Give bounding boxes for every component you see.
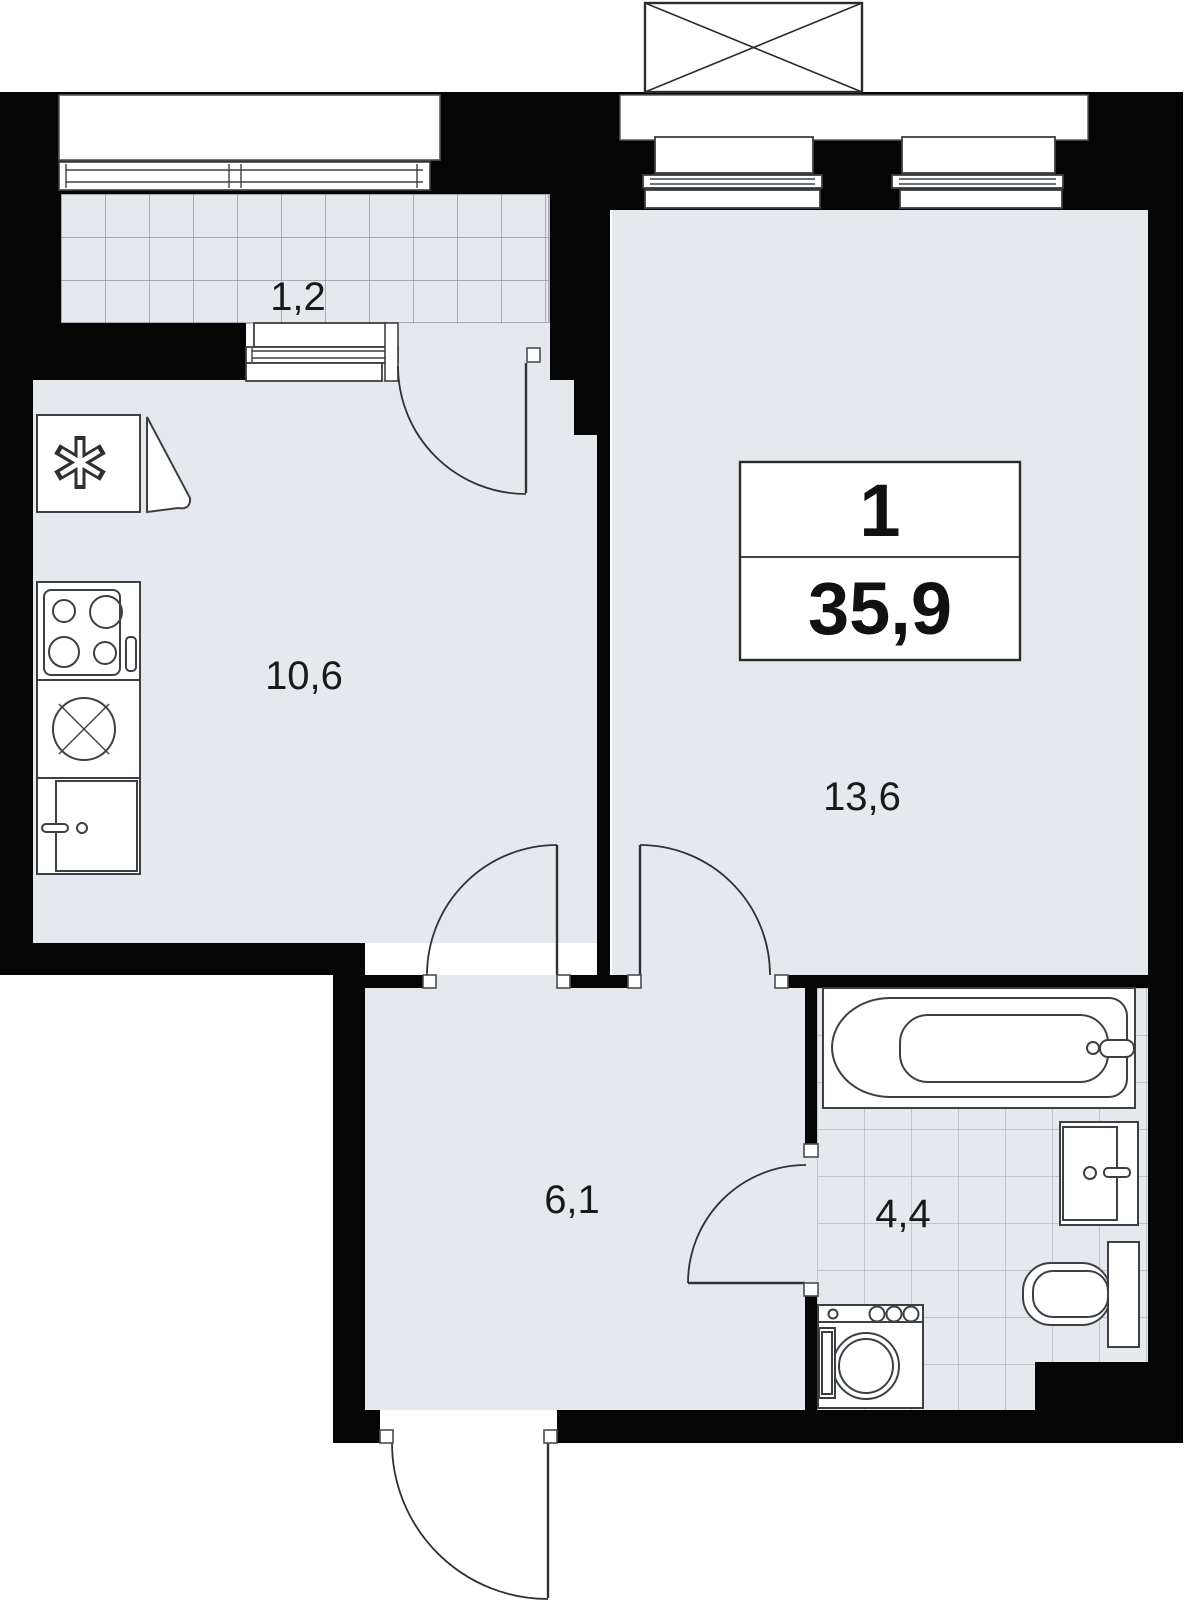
bathtub-spout-icon bbox=[1100, 1040, 1134, 1057]
wall-right bbox=[1148, 92, 1183, 1443]
wall-balcony-living-divider bbox=[550, 160, 610, 380]
living-room-area-label: 13,6 bbox=[823, 775, 901, 819]
toilet-cistern bbox=[1108, 1242, 1139, 1347]
washbasin-spout-icon bbox=[1104, 1168, 1130, 1177]
wall-under-balcony bbox=[33, 323, 246, 380]
washing-machine bbox=[818, 1305, 923, 1408]
balcony-area-label: 1,2 bbox=[270, 275, 326, 319]
entrance-door bbox=[380, 1410, 557, 1599]
wall-kitchen-bottom bbox=[0, 943, 365, 975]
kitchen-balcony-window bbox=[246, 323, 398, 381]
floor-plan-drawing: 1,2 10,6 13,6 6,1 4,4 1 35,9 bbox=[0, 0, 1185, 1600]
vent-shaft-symbol bbox=[645, 3, 862, 92]
total-area-value: 35,9 bbox=[808, 567, 952, 650]
rooms-count-value: 1 bbox=[859, 469, 900, 552]
bathtub bbox=[823, 988, 1135, 1108]
living-room-window-right bbox=[892, 137, 1063, 208]
wall-bathroom-left-lower bbox=[805, 1283, 817, 1410]
wall-hallway-top-stub bbox=[365, 975, 423, 988]
bathroom-doorway-floor bbox=[805, 1157, 817, 1283]
apartment-info-box: 1 35,9 bbox=[740, 462, 1020, 660]
wall-kitchen-living bbox=[597, 435, 610, 975]
balcony-railing-window bbox=[59, 162, 430, 190]
stove bbox=[37, 582, 140, 680]
living-room-window-left bbox=[643, 137, 822, 208]
kitchen-cabinet bbox=[37, 778, 140, 874]
bathtub-faucet-icon bbox=[1087, 1042, 1099, 1054]
wall-left bbox=[0, 190, 33, 975]
balcony-glazing bbox=[59, 95, 440, 160]
hallway-area-label: 6,1 bbox=[544, 1178, 600, 1222]
washbasin bbox=[1060, 1122, 1138, 1225]
wall-kitchen-living-tip bbox=[570, 975, 628, 988]
washbasin-faucet-icon bbox=[1084, 1167, 1096, 1179]
bathroom-area-label: 4,4 bbox=[875, 1192, 931, 1236]
wall-bathroom-left-upper bbox=[805, 988, 817, 1157]
wall-living-bottom bbox=[787, 975, 1148, 988]
kitchen-area-label: 10,6 bbox=[265, 654, 343, 698]
wall-divider-step bbox=[574, 380, 610, 435]
wall-hallway-left bbox=[333, 943, 365, 1443]
floor-plan-page: 1,2 10,6 13,6 6,1 4,4 1 35,9 bbox=[0, 0, 1185, 1600]
living-room-window-band bbox=[620, 95, 1088, 140]
balcony-door-frame bbox=[385, 323, 398, 381]
wall-balcony-left bbox=[33, 190, 61, 323]
kitchen-sink bbox=[37, 680, 140, 778]
